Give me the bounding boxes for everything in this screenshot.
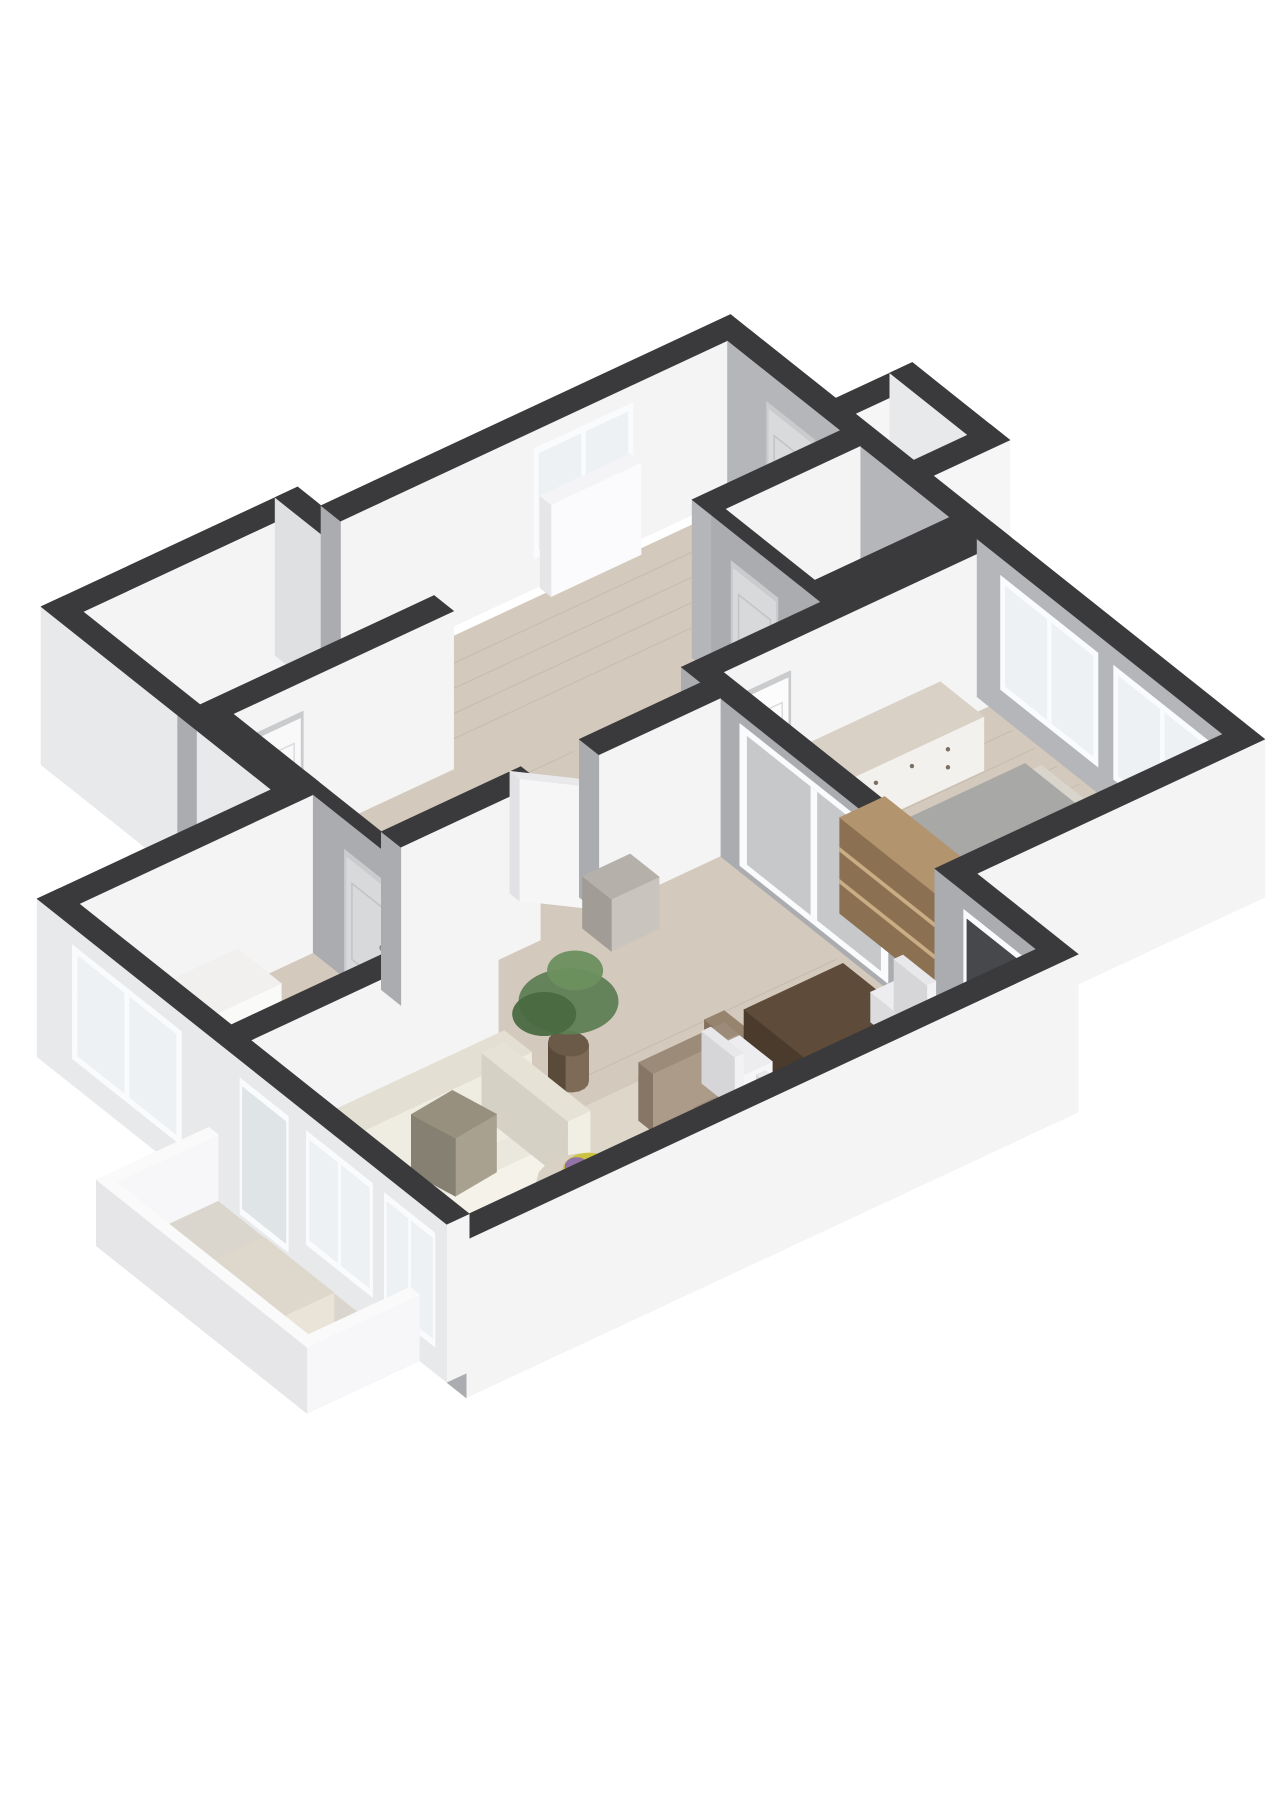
dresser-knob — [946, 747, 950, 751]
dresser-knob — [946, 765, 950, 769]
dresser-knob — [910, 764, 914, 768]
dresser-knob — [874, 781, 878, 785]
plant-foliage — [512, 992, 576, 1036]
floorplan-page — [0, 0, 1280, 1810]
floorplan-3d-render — [0, 0, 1280, 1810]
plant-foliage — [547, 951, 603, 991]
